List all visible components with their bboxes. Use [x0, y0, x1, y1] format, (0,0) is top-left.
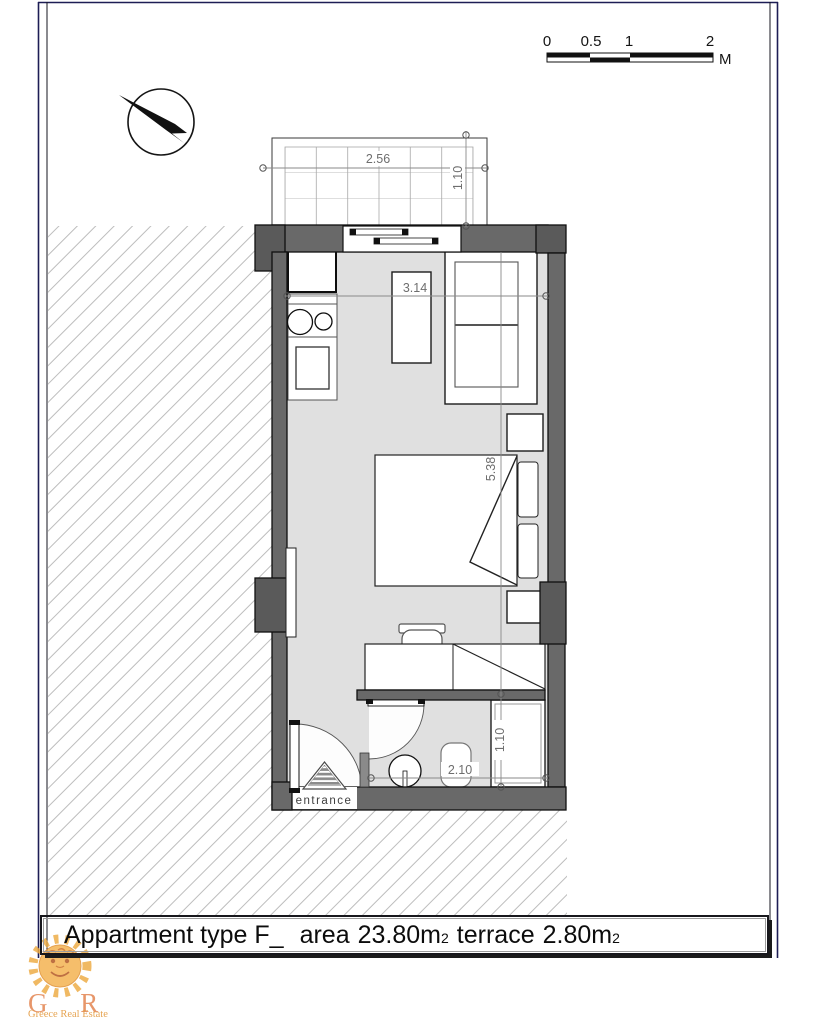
kitchen-sink — [296, 347, 329, 389]
dim-room-width: 3.14 — [403, 281, 427, 295]
logo-tagline: Greece Real Estate — [28, 1009, 108, 1020]
nightstand-bottom — [507, 591, 541, 623]
hob-burner-large — [288, 310, 313, 335]
pillow-2 — [518, 524, 538, 578]
plan-title: Appartment type F_area23.80m2terrace2.80… — [43, 918, 766, 952]
title-apartment: Appartment type F_ — [64, 921, 284, 950]
wall-left — [272, 252, 287, 788]
north-arrow-icon — [119, 89, 194, 155]
wall-right — [548, 253, 565, 787]
entrance-door-leaf — [290, 722, 299, 792]
floor-plan-canvas: 0 0.5 1 2 M — [0, 0, 816, 1024]
wall-pillar-right — [540, 582, 566, 644]
wall-bathroom-divider — [357, 690, 545, 700]
floor-plan-page: 0 0.5 1 2 M — [0, 0, 816, 1024]
title-area-unit: m — [420, 921, 441, 950]
scale-tick-2: 2 — [706, 33, 714, 50]
wall-corner-top-right — [536, 225, 566, 253]
scale-tick-0: 0 — [543, 33, 551, 50]
dim-shower-depth: 1.10 — [493, 728, 507, 752]
dim-room-length: 5.38 — [484, 457, 498, 481]
scale-bar: 0 0.5 1 2 M — [543, 33, 732, 68]
wall-pillar-left — [255, 578, 287, 632]
title-terrace-label: terrace — [457, 921, 535, 950]
scale-unit: M — [719, 51, 732, 68]
dim-terrace-width: 2.56 — [366, 152, 390, 166]
scale-tick-1: 1 — [625, 33, 633, 50]
wall-corner-bottom-left — [272, 782, 292, 810]
hob-burner-small — [315, 313, 332, 330]
washbasin-tap — [403, 771, 407, 788]
nightstand-top — [507, 414, 543, 451]
left-wall-window — [286, 548, 296, 637]
kitchen-unit — [288, 244, 338, 400]
dim-bathroom-width: 2.10 — [448, 763, 472, 777]
sofa — [445, 248, 537, 404]
title-area-label: area — [300, 921, 350, 950]
bathroom-door-leaf — [368, 700, 424, 706]
title-box: Appartment type F_area23.80m2terrace2.80… — [40, 915, 769, 955]
title-terrace-value: 2.80 — [543, 921, 592, 950]
scale-tick-05: 0.5 — [581, 33, 602, 50]
wall-bathroom-stub — [360, 753, 369, 787]
dim-terrace-depth: 1.10 — [451, 166, 465, 190]
title-terrace-unit: m — [591, 921, 612, 950]
title-area-value: 23.80 — [358, 921, 421, 950]
entrance-label: entrance — [296, 795, 353, 807]
bed — [375, 455, 538, 586]
pillow-1 — [518, 462, 538, 517]
